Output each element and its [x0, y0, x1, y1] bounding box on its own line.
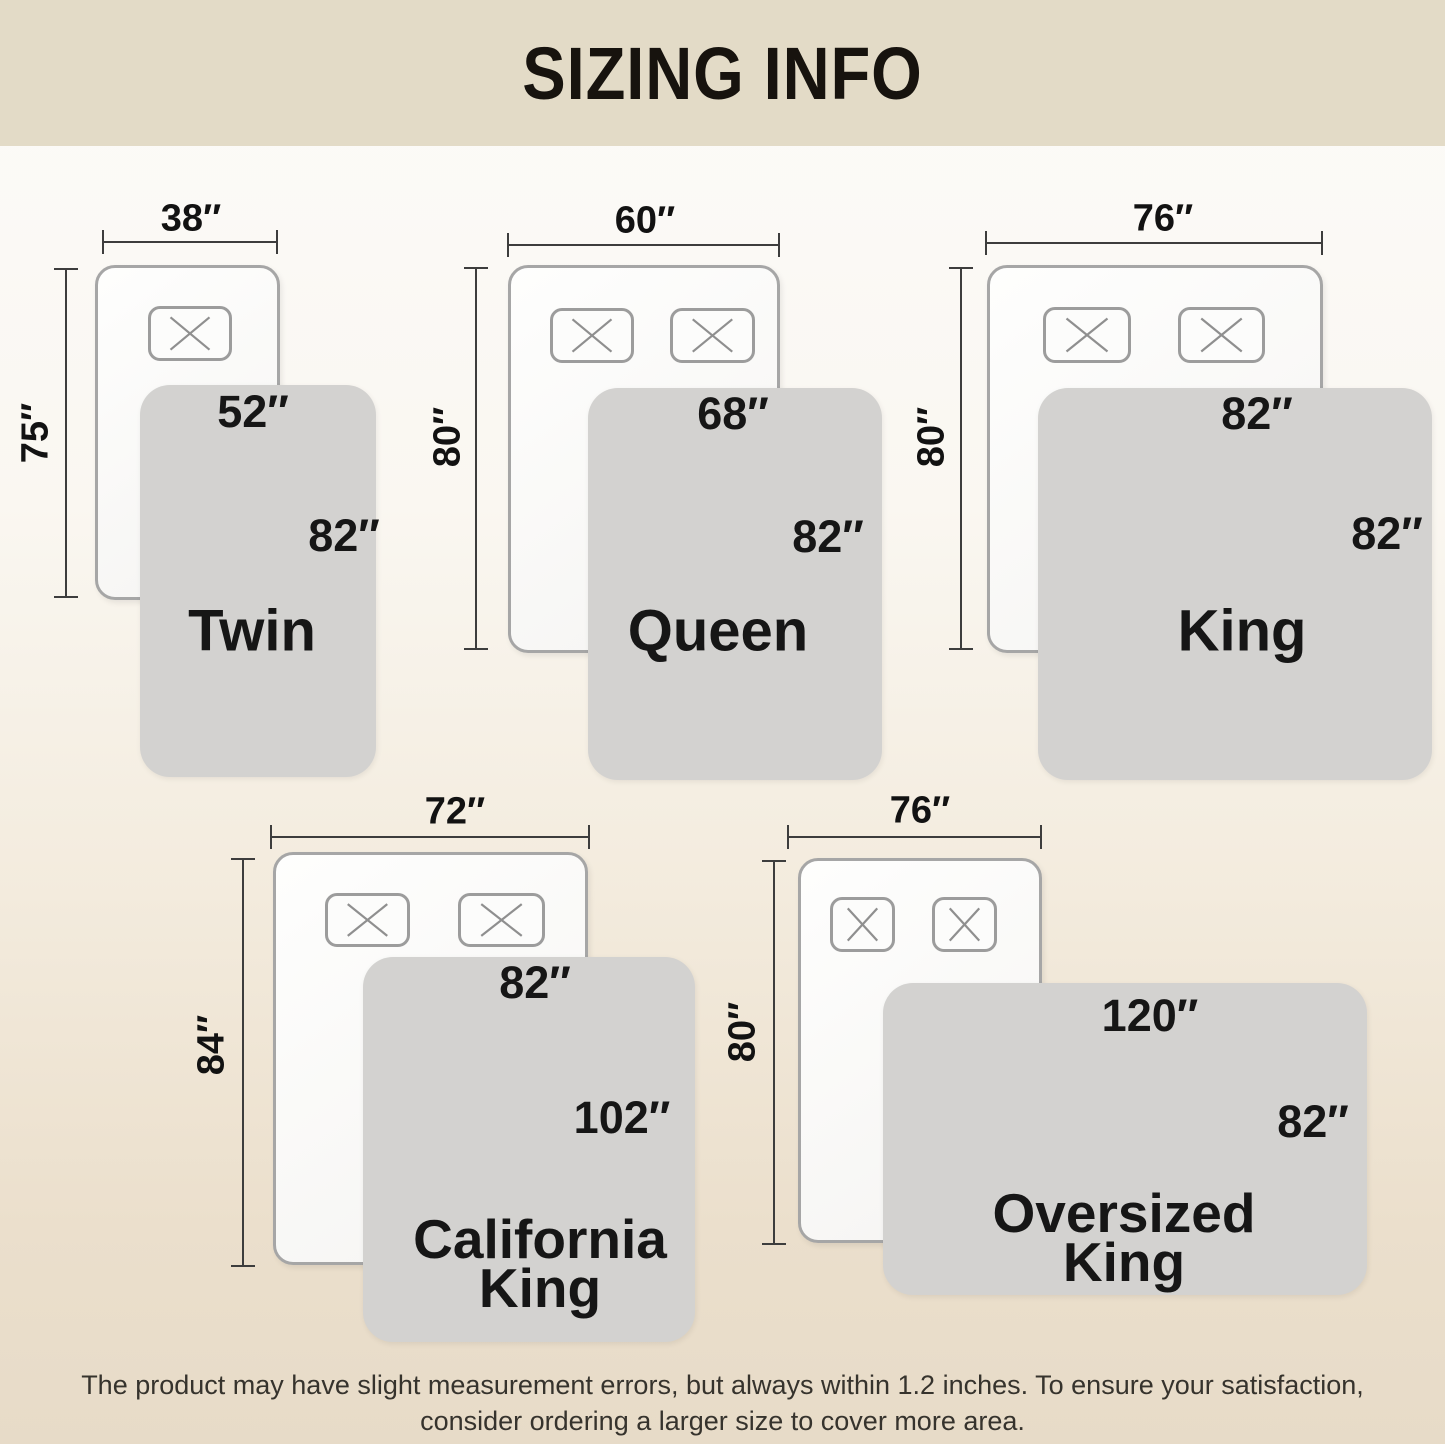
blanket-width-label: 120″ — [1102, 990, 1199, 1042]
size-name-label: Queen — [628, 598, 809, 665]
bed-width-label: 38″ — [161, 198, 221, 241]
bed-width-dimension-line — [270, 836, 590, 838]
pillow-icon — [1178, 307, 1265, 363]
blanket-width-label: 82″ — [499, 957, 571, 1009]
bed-length-dimension-line — [773, 860, 775, 1245]
blanket-length-label: 82″ — [308, 510, 380, 562]
blanket-length-label: 82″ — [792, 511, 864, 563]
pillow-icon — [932, 897, 997, 952]
pillow-x-icon — [673, 311, 752, 360]
size-name-label: California King — [375, 1215, 705, 1313]
pillow-icon — [550, 308, 634, 363]
size-name-label: Oversized King — [959, 1189, 1289, 1287]
blanket-length-label: 102″ — [574, 1092, 671, 1144]
pillow-x-icon — [935, 900, 994, 949]
measurement-disclaimer: The product may have slight measurement … — [43, 1367, 1403, 1439]
sizing-info-page: SIZING INFO 38″ 75″ 52″ 82″ Twin 60″ 80″… — [0, 0, 1445, 1444]
pillow-icon — [325, 893, 410, 947]
blanket-shape — [140, 385, 376, 777]
bed-width-dimension-line — [985, 242, 1323, 244]
pillow-icon — [1043, 307, 1131, 363]
bed-width-label: 60″ — [615, 200, 675, 243]
pillow-x-icon — [151, 309, 229, 358]
size-name-label: Twin — [188, 598, 316, 665]
bed-width-dimension-line — [507, 244, 780, 246]
bed-width-dimension-line — [787, 836, 1042, 838]
bed-length-label: 84″ — [191, 1015, 234, 1075]
bed-length-label: 80″ — [911, 407, 954, 467]
pillow-x-icon — [461, 896, 542, 944]
bed-width-label: 76″ — [890, 790, 950, 833]
pillow-x-icon — [328, 896, 407, 944]
bed-length-dimension-line — [475, 267, 477, 650]
blanket-width-label: 52″ — [217, 386, 289, 438]
blanket-shape — [588, 388, 882, 780]
bed-length-dimension-line — [242, 858, 244, 1267]
blanket-length-label: 82″ — [1277, 1096, 1349, 1148]
pillow-icon — [148, 306, 232, 361]
bed-length-dimension-line — [960, 267, 962, 650]
blanket-width-label: 68″ — [697, 388, 769, 440]
bed-length-label: 80″ — [722, 1002, 765, 1062]
pillow-x-icon — [1046, 310, 1128, 360]
pillow-x-icon — [833, 900, 892, 949]
header-band: SIZING INFO — [0, 0, 1445, 146]
size-name-label: King — [1178, 598, 1307, 665]
bed-length-dimension-line — [65, 268, 67, 598]
bed-width-label: 72″ — [425, 791, 485, 834]
blanket-width-label: 82″ — [1221, 388, 1293, 440]
bed-length-label: 75″ — [15, 403, 58, 463]
pillow-icon — [670, 308, 755, 363]
bed-width-label: 76″ — [1133, 198, 1193, 241]
pillow-x-icon — [553, 311, 631, 360]
pillow-x-icon — [1181, 310, 1262, 360]
bed-length-label: 80″ — [427, 407, 470, 467]
bed-width-dimension-line — [102, 241, 278, 243]
blanket-length-label: 82″ — [1351, 508, 1423, 560]
page-title: SIZING INFO — [522, 31, 922, 116]
blanket-shape — [1038, 388, 1432, 780]
pillow-icon — [830, 897, 895, 952]
pillow-icon — [458, 893, 545, 947]
